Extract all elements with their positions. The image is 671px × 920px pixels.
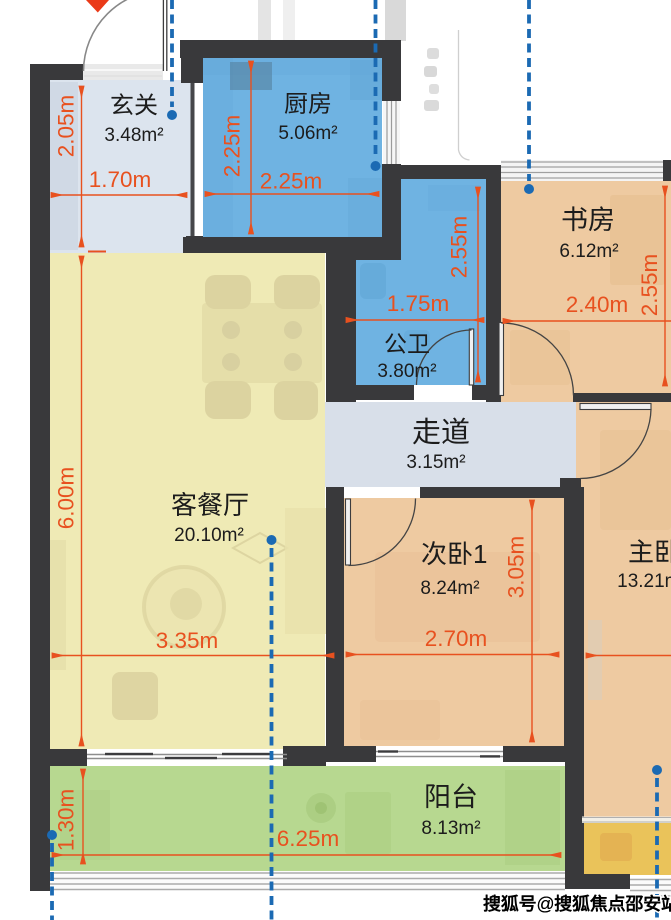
svg-text:6.12m²: 6.12m² [559,241,618,262]
svg-text:2.05m: 2.05m [54,95,79,158]
svg-text:2.70m: 2.70m [425,626,488,651]
svg-text:6.25m: 6.25m [277,826,340,851]
svg-text:2.55m: 2.55m [637,254,662,317]
svg-text:2.55m: 2.55m [447,216,472,279]
svg-text:3.05m: 3.05m [504,536,529,599]
svg-text:1.75m: 1.75m [387,291,450,316]
svg-text:2.25m: 2.25m [260,169,323,194]
svg-text:3.80m²: 3.80m² [377,361,436,382]
svg-text:6.00m: 6.00m [54,467,79,530]
svg-text:1.70m: 1.70m [89,167,152,192]
svg-text:3.15m²: 3.15m² [406,452,465,473]
svg-text:@: @ [536,894,554,914]
svg-text:3.35m: 3.35m [156,628,219,653]
svg-text:3.48m²: 3.48m² [104,125,163,146]
svg-text:8.24m²: 8.24m² [420,578,479,599]
svg-text:8.13m²: 8.13m² [421,818,480,839]
svg-text:2.25m: 2.25m [220,115,245,178]
svg-text:2.40m: 2.40m [566,292,629,317]
svg-text:20.10m²: 20.10m² [174,525,244,546]
svg-text:13.21m²: 13.21m² [617,571,671,592]
svg-text:1.30m: 1.30m [54,789,79,852]
svg-text:1: 1 [473,539,487,569]
svg-text:5.06m²: 5.06m² [278,123,337,144]
